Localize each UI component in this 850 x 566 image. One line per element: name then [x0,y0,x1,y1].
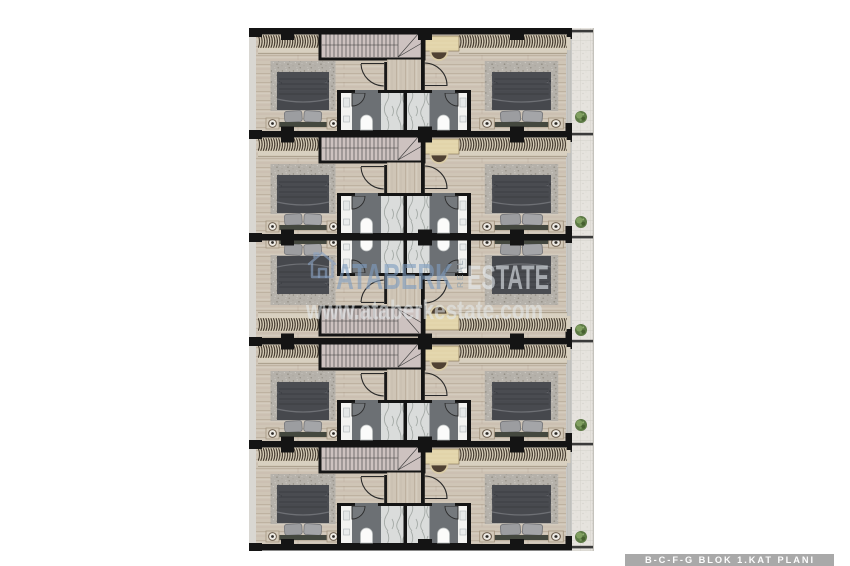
svg-text:ESTATE: ESTATE [467,259,549,297]
svg-text:B-C-F-G BLOK 1.KAT PLANI: B-C-F-G BLOK 1.KAT PLANI [645,555,815,566]
svg-text:REAL: REAL [455,259,465,288]
svg-text:www.ataberkestate.com: www.ataberkestate.com [305,295,543,325]
svg-text:ATABERK: ATABERK [336,256,453,297]
